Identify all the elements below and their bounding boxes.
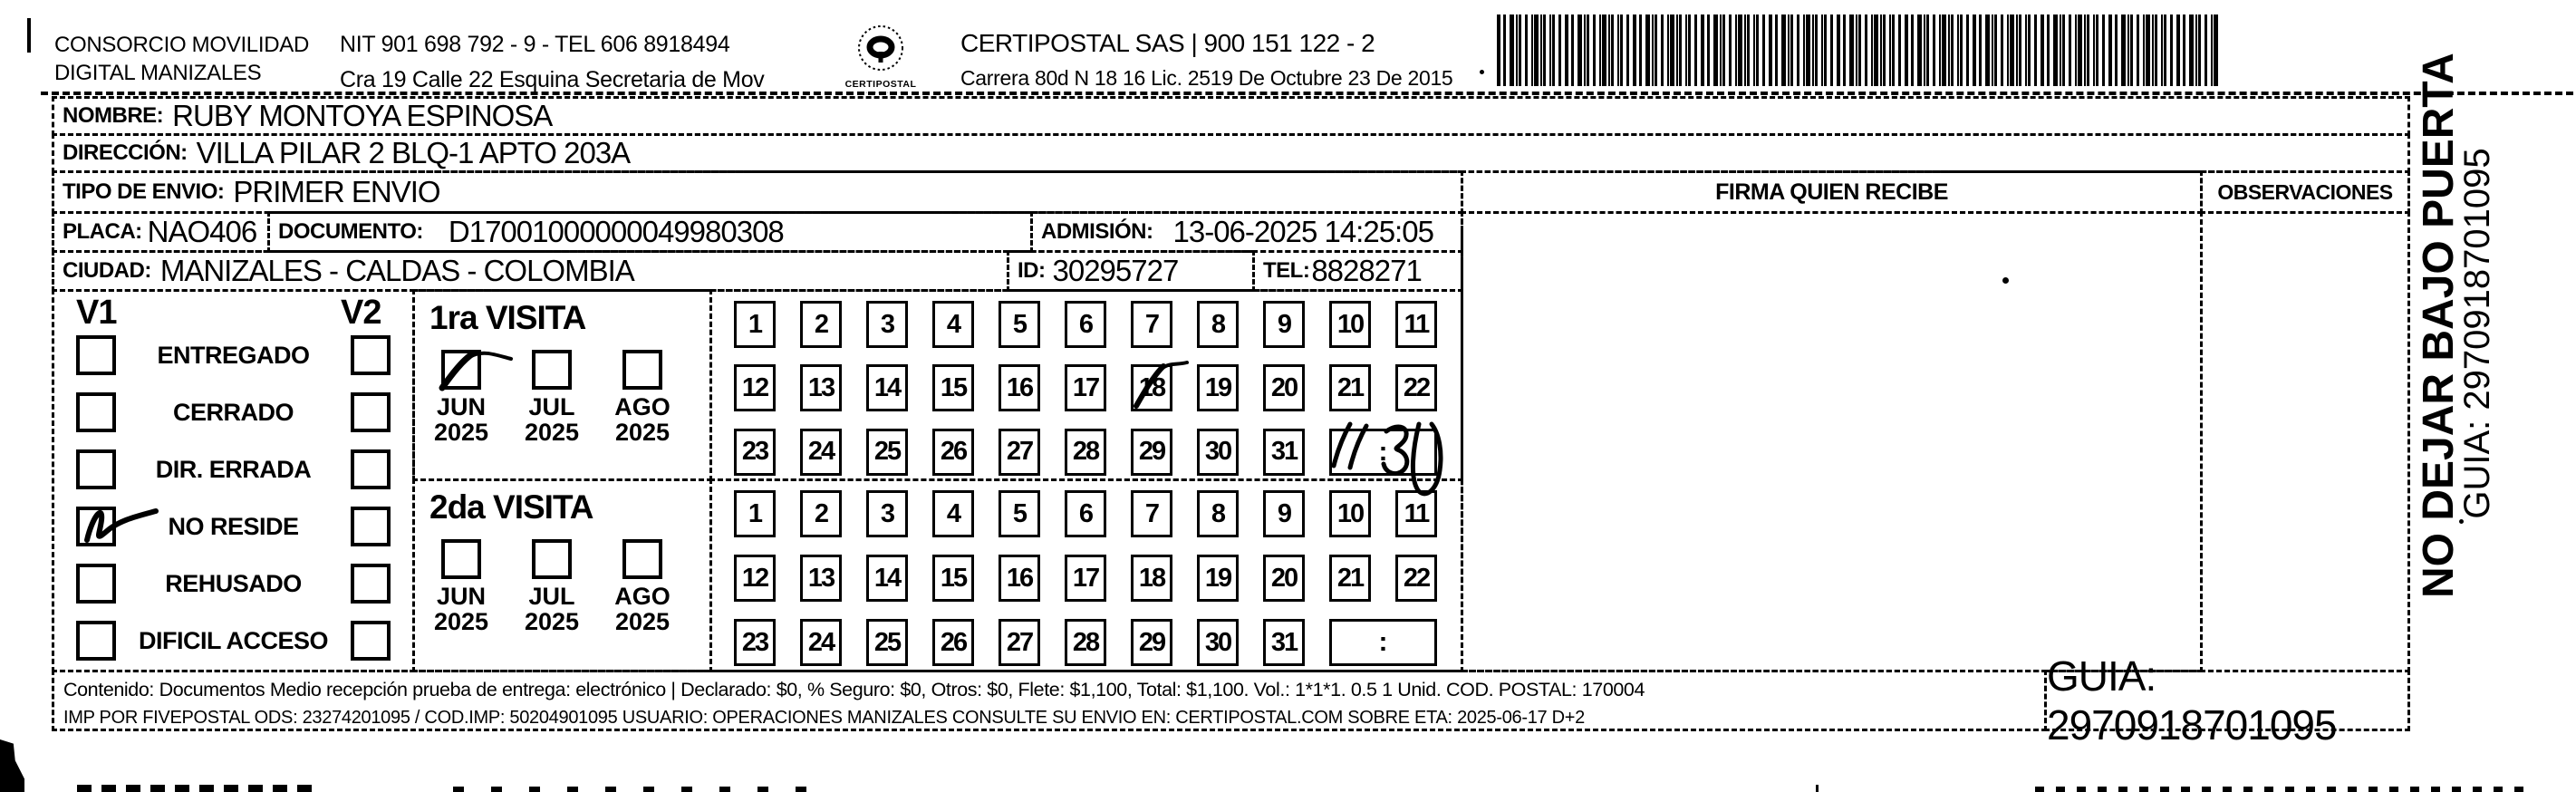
ciudad-cell: CIUDAD: MANIZALES - CALDAS - COLOMBIA: [52, 250, 1009, 292]
barcode-bar: [2211, 14, 2213, 86]
ciudad-label: CIUDAD:: [63, 258, 151, 284]
visit2-day-31: 31: [1263, 619, 1305, 666]
barcode-bar: [1611, 14, 1614, 86]
barcode-bar: [1738, 14, 1742, 86]
barcode-bar: [1824, 14, 1827, 86]
v1-column-header: V1: [76, 294, 116, 333]
barcode-bar: [2025, 14, 2027, 86]
barcode: [1497, 14, 2222, 86]
barcode-bar: [1781, 14, 1786, 86]
status-label-cerrado: CERRADO: [116, 399, 351, 427]
barcode-bar: [1797, 14, 1799, 86]
barcode-bar: [1830, 14, 1833, 86]
visit2-day-8: 8: [1197, 490, 1239, 537]
visit1-day-18: 18: [1131, 364, 1172, 411]
certipostal-logo-icon: [826, 24, 935, 74]
visit2-month-label-ago: AGO: [609, 584, 676, 609]
documento-cell: DOCUMENTO: D17001000000049980308: [267, 211, 1033, 253]
barcode-bar: [1849, 14, 1854, 86]
visit1-month-jun: JUN2025: [428, 350, 495, 447]
barcode-bar: [2007, 14, 2009, 86]
barcode-bar: [1933, 14, 1935, 86]
visit2-month-jun: JUN2025: [428, 539, 495, 636]
barcode-bar: [2176, 14, 2180, 86]
visit1-day-17: 17: [1065, 364, 1106, 411]
barcode-bar: [1722, 14, 1725, 86]
scan-artifact-bottom-dashes-3: [2035, 787, 2529, 792]
visit1-month-label-jul: JUL: [518, 394, 585, 420]
barcode-bar: [1694, 14, 1697, 86]
visit2-month-year-jun: 2025: [428, 609, 495, 636]
visit1-day-20: 20: [1263, 364, 1305, 411]
visit2-day-30: 30: [1197, 619, 1239, 666]
barcode-bar: [1540, 14, 1542, 86]
barcode-bar: [2189, 14, 2194, 86]
v2-checkbox-rehusado: [351, 564, 391, 604]
barcode-bar: [1985, 14, 1990, 86]
visit2-months: JUN2025JUL2025AGO2025: [428, 539, 676, 636]
tel-cell: TEL: 8828271: [1252, 250, 1463, 292]
direccion-value: VILLA PILAR 2 BLQ-1 APTO 203A: [197, 136, 631, 170]
barcode-bar: [1880, 14, 1882, 86]
barcode-bar: [2019, 14, 2021, 86]
placa-cell: PLACA: NAO406: [52, 211, 270, 253]
barcode-bar: [2130, 14, 2133, 86]
visit1-month-label-ago: AGO: [609, 394, 676, 420]
barcode-bar: [1994, 14, 1997, 86]
firma-body: [1461, 211, 2203, 672]
placa-label: PLACA:: [63, 219, 142, 245]
status-label-dificil-acceso: DIFICIL ACCESO: [116, 627, 351, 655]
barcode-bar: [1633, 14, 1636, 86]
v1-checkbox-cerrado: [76, 392, 116, 432]
observaciones-body: [2200, 211, 2410, 672]
barcode-bar: [1525, 14, 1528, 86]
barcode-bar: [2143, 14, 2145, 86]
barcode-bar: [2170, 14, 2173, 86]
barcode-bar: [2108, 14, 2112, 86]
visit2-day-26: 26: [932, 619, 974, 666]
visit1-day-14: 14: [866, 364, 908, 411]
visit2-day-1: 1: [734, 490, 776, 537]
visit2-day-28: 28: [1065, 619, 1106, 666]
visit2-month-jul: JUL2025: [518, 539, 585, 636]
barcode-bar: [2062, 14, 2065, 86]
visit2-day-22: 22: [1395, 555, 1437, 602]
barcode-bar: [1713, 14, 1718, 86]
direccion-label: DIRECCIÓN:: [63, 140, 188, 166]
barcode-bar: [2115, 14, 2118, 86]
v2-checkbox-cerrado: [351, 392, 391, 432]
barcode-bar: [1602, 14, 1606, 86]
tipo-envio-row: TIPO DE ENVIO: PRIMER ENVIO: [52, 170, 1463, 214]
barcode-bar: [1788, 14, 1790, 86]
barcode-bar: [2214, 14, 2218, 86]
barcode-bar: [1516, 14, 1518, 86]
barcode-bar: [1558, 14, 1561, 86]
guia-vertical-text: GUIA: 2970918701095: [2457, 134, 2497, 533]
visit1-day-24: 24: [800, 429, 842, 476]
visit1-day-15: 15: [932, 364, 974, 411]
barcode-bar: [2155, 14, 2157, 86]
barcode-bar: [2183, 14, 2185, 86]
visit2-day-2: 2: [800, 490, 842, 537]
visit1-month-checkbox-jul: [532, 350, 572, 390]
visit1-day-30: 30: [1197, 429, 1239, 476]
visit1-day-grid: 1234567891011121314151617181920212223242…: [709, 289, 1463, 481]
barcode-bar: [2127, 14, 2129, 86]
visit2-day-4: 4: [932, 490, 974, 537]
admision-cell: ADMISIÓN: 13-06-2025 14:25:05: [1030, 211, 1463, 253]
visit2-day-5: 5: [999, 490, 1040, 537]
status-label-rehusado: REHUSADO: [116, 570, 351, 598]
visit1-day-27: 27: [999, 429, 1040, 476]
visit1-months: JUN2025JUL2025AGO2025: [428, 350, 676, 447]
barcode-bar: [1531, 14, 1533, 86]
barcode-bar: [1815, 14, 1818, 86]
visit2-day-3: 3: [866, 490, 908, 537]
barcode-bar: [2010, 14, 2014, 86]
observaciones-header: OBSERVACIONES: [2200, 170, 2410, 214]
barcode-bar: [1960, 14, 1963, 86]
barcode-bar: [1593, 14, 1596, 86]
barcode-bar: [1865, 14, 1867, 86]
visit1-month-jul: JUL2025: [518, 350, 585, 447]
barcode-bar: [2198, 14, 2201, 86]
barcode-bar: [1889, 14, 1891, 86]
visit1-day-7: 7: [1131, 301, 1172, 348]
barcode-bar: [1871, 14, 1873, 86]
barcode-bar: [1565, 14, 1568, 86]
visit1-day-29: 29: [1131, 429, 1172, 476]
v1-checkbox-dir-errada: [76, 449, 116, 489]
v2-checkbox-entregado: [351, 335, 391, 375]
visit1-day-2: 2: [800, 301, 842, 348]
barcode-bar: [1571, 14, 1574, 86]
visit2-day-grid: 1234567891011121314151617181920212223242…: [709, 478, 1463, 672]
barcode-bar: [1790, 14, 1793, 86]
barcode-bar: [1821, 14, 1823, 86]
v2-checkbox-dificil-acceso: [351, 621, 391, 661]
visit2-month-checkbox-ago: [622, 539, 662, 579]
barcode-bar: [1707, 14, 1710, 86]
certipostal-name: CERTIPOSTAL SAS | 900 151 122 - 2: [960, 29, 1452, 58]
admision-value: 13-06-2025 14:25:05: [1173, 215, 1433, 249]
footer-cell: Contenido: Documentos Medio recepción pr…: [52, 670, 2047, 731]
scan-speck-3: [1480, 70, 1484, 74]
scan-speck-2: [2459, 519, 2464, 524]
barcode-bar: [1645, 14, 1650, 86]
v1-checkbox-entregado: [76, 335, 116, 375]
visit1-day-26: 26: [932, 429, 974, 476]
scan-artifact-bottom-dashes-1: [77, 785, 314, 792]
barcode-bar: [1924, 14, 1925, 86]
status-row-no-reside: NO RESIDE: [54, 507, 412, 546]
status-label-dir-errada: DIR. ERRADA: [116, 456, 351, 484]
barcode-bar: [2034, 14, 2037, 86]
status-row-cerrado: CERRADO: [54, 392, 412, 432]
certipostal-logo-caption: CERTIPOSTAL: [826, 79, 935, 90]
barcode-bar: [1843, 14, 1846, 86]
scan-artifact-corner: [0, 739, 24, 792]
visit1-day-9: 9: [1263, 301, 1305, 348]
id-cell: ID: 30295727: [1007, 250, 1255, 292]
visit2-month-year-ago: 2025: [609, 609, 676, 636]
v2-checkbox-no-reside: [351, 507, 391, 546]
barcode-bar: [1584, 14, 1586, 86]
visit2-month-label-jun: JUN: [428, 584, 495, 609]
barcode-bar: [1655, 14, 1657, 86]
sender-company-line1: CONSORCIO MOVILIDAD: [54, 31, 309, 59]
barcode-bar: [1856, 14, 1857, 86]
barcode-bar: [1812, 14, 1814, 86]
barcode-bar: [1942, 14, 1946, 86]
tel-value: 8828271: [1311, 254, 1421, 288]
visit2-month-ago: AGO2025: [609, 539, 676, 636]
barcode-bar: [1620, 14, 1623, 86]
visit1-day-11: 11: [1395, 301, 1437, 348]
barcode-bar: [1679, 14, 1682, 86]
visit1-day-10: 10: [1329, 301, 1371, 348]
sender-nit: NIT 901 698 792 - 9 - TEL 606 8918494: [340, 27, 765, 63]
nombre-value: RUBY MONTOYA ESPINOSA: [172, 99, 552, 133]
visit2-day-24: 24: [800, 619, 842, 666]
tipo-envio-value: PRIMER ENVIO: [233, 175, 439, 209]
certipostal-info: CERTIPOSTAL SAS | 900 151 122 - 2 Carrer…: [960, 29, 1452, 91]
barcode-bar: [1898, 14, 1901, 86]
barcode-bar: [1973, 14, 1976, 86]
visit1-day-21: 21: [1329, 364, 1371, 411]
barcode-bar: [2060, 14, 2061, 86]
visit2-day-29: 29: [1131, 619, 1172, 666]
barcode-bar: [1948, 14, 1950, 86]
barcode-bar: [1979, 14, 1982, 86]
barcode-bar: [1837, 14, 1840, 86]
footer-line2: IMP POR FIVEPOSTAL ODS: 23274201095 / CO…: [63, 708, 2044, 729]
visit2-day-16: 16: [999, 555, 1040, 602]
scan-artifact-bottom-dashes-2: [453, 787, 834, 792]
barcode-bar: [2146, 14, 2150, 86]
visit2-day-10: 10: [1329, 490, 1371, 537]
visit1-time-box: :: [1329, 429, 1437, 476]
visit2-month-year-jul: 2025: [518, 609, 585, 636]
visit2-time-box: :: [1329, 619, 1437, 666]
barcode-bar: [1905, 14, 1908, 86]
barcode-bar: [1756, 14, 1759, 86]
barcode-bar: [1858, 14, 1861, 86]
visit2-month-label-jul: JUL: [518, 584, 585, 609]
visit2-day-17: 17: [1065, 555, 1106, 602]
barcode-bar: [2137, 14, 2139, 86]
documento-value: D17001000000049980308: [449, 215, 784, 249]
visit1-month-panel: 1ra VISITA JUN2025JUL2025AGO2025: [412, 289, 712, 481]
barcode-bar: [1926, 14, 1929, 86]
visit2-title: 2da VISITA: [429, 488, 593, 526]
visit2-day-9: 9: [1263, 490, 1305, 537]
barcode-bar: [1497, 14, 1500, 86]
visit1-day-13: 13: [800, 364, 842, 411]
visit1-month-checkbox-jun: [441, 350, 481, 390]
barcode-bar: [1652, 14, 1654, 86]
barcode-bar: [1775, 14, 1778, 86]
barcode-bar: [1951, 14, 1954, 86]
barcode-bar: [1747, 14, 1750, 86]
barcode-bar: [1911, 14, 1914, 86]
barcode-bar: [2096, 14, 2098, 86]
barcode-bar: [1735, 14, 1737, 86]
barcode-bar: [2093, 14, 2095, 86]
visit2-day-6: 6: [1065, 490, 1106, 537]
barcode-bar: [1762, 14, 1765, 86]
tel-label: TEL:: [1263, 258, 1309, 284]
barcode-bar: [1577, 14, 1582, 86]
visit2-day-13: 13: [800, 555, 842, 602]
visit1-day-1: 1: [734, 301, 776, 348]
status-panel: V1 V2 ENTREGADOCERRADODIR. ERRADANO RESI…: [52, 289, 415, 672]
ciudad-value: MANIZALES - CALDAS - COLOMBIA: [160, 254, 634, 288]
admision-label: ADMISIÓN:: [1041, 219, 1153, 245]
barcode-bar: [2001, 14, 2003, 86]
visit2-day-18: 18: [1131, 555, 1172, 602]
barcode-bar: [1626, 14, 1629, 86]
barcode-bar: [1729, 14, 1732, 86]
visit2-day-25: 25: [866, 619, 908, 666]
visit1-day-12: 12: [734, 364, 776, 411]
certipostal-address: Carrera 80d N 18 16 Lic. 2519 De Octubre…: [960, 66, 1452, 91]
status-row-rehusado: REHUSADO: [54, 564, 412, 604]
v1-checkbox-no-reside: [76, 507, 116, 546]
firma-header: FIRMA QUIEN RECIBE: [1461, 170, 2203, 214]
visit1-month-checkbox-ago: [622, 350, 662, 390]
visit2-day-27: 27: [999, 619, 1040, 666]
visit2-day-23: 23: [734, 619, 776, 666]
barcode-bar: [2195, 14, 2197, 86]
footer-line1: Contenido: Documentos Medio recepción pr…: [63, 679, 2044, 701]
barcode-bar: [1744, 14, 1746, 86]
barcode-bar: [1670, 14, 1674, 86]
visit2-day-7: 7: [1131, 490, 1172, 537]
v2-column-header: V2: [341, 294, 381, 333]
tipo-envio-label: TIPO DE ENVIO:: [63, 179, 224, 205]
visit1-day-4: 4: [932, 301, 974, 348]
visit2-day-12: 12: [734, 555, 776, 602]
v2-checkbox-dir-errada: [351, 449, 391, 489]
visit1-day-28: 28: [1065, 429, 1106, 476]
barcode-bar: [1503, 14, 1506, 86]
sender-contact: NIT 901 698 792 - 9 - TEL 606 8918494 Cr…: [340, 27, 765, 98]
visit1-day-23: 23: [734, 429, 776, 476]
barcode-bar: [1667, 14, 1669, 86]
barcode-bar: [2205, 14, 2207, 86]
barcode-bar: [1519, 14, 1521, 86]
barcode-bar: [1803, 14, 1805, 86]
barcode-bar: [1917, 14, 1922, 86]
nombre-label: NOMBRE:: [63, 103, 163, 129]
top-rule: [41, 92, 2573, 95]
barcode-bar: [1992, 14, 1993, 86]
visit1-month-ago: AGO2025: [609, 350, 676, 447]
status-row-entregado: ENTREGADO: [54, 335, 412, 375]
barcode-bar: [2047, 14, 2050, 86]
status-label-entregado: ENTREGADO: [116, 342, 351, 370]
id-label: ID:: [1018, 258, 1046, 284]
visit1-month-year-jul: 2025: [518, 420, 585, 447]
visit1-month-label-jun: JUN: [428, 394, 495, 420]
visit2-day-19: 19: [1197, 555, 1239, 602]
barcode-bar: [1639, 14, 1642, 86]
visit2-day-14: 14: [866, 555, 908, 602]
barcode-bar: [2016, 14, 2018, 86]
visit2-day-15: 15: [932, 555, 974, 602]
visit2-day-21: 21: [1329, 555, 1371, 602]
barcode-bar: [1892, 14, 1895, 86]
barcode-bar: [1806, 14, 1810, 86]
barcode-bar: [1510, 14, 1514, 86]
visit1-day-22: 22: [1395, 364, 1437, 411]
no-dejar-bajo-puerta-text: NO DEJAR BAJO PUERTA: [2414, 91, 2461, 598]
visit1-day-19: 19: [1197, 364, 1239, 411]
barcode-bar: [1685, 14, 1687, 86]
barcode-bar: [1617, 14, 1619, 86]
sender-company-line2: DIGITAL MANIZALES: [54, 59, 309, 87]
barcode-bar: [1661, 14, 1664, 86]
status-row-dificil-acceso: DIFICIL ACCESO: [54, 621, 412, 661]
barcode-bar: [2152, 14, 2154, 86]
certipostal-logo: CERTIPOSTAL ··············: [826, 24, 935, 96]
barcode-bar: [1688, 14, 1691, 86]
barcode-bar: [1769, 14, 1772, 86]
visit1-day-25: 25: [866, 429, 908, 476]
visit2-month-panel: 2da VISITA JUN2025JUL2025AGO2025: [412, 478, 712, 672]
status-row-dir-errada: DIR. ERRADA: [54, 449, 412, 489]
barcode-bar: [1966, 14, 1969, 86]
barcode-bar: [2087, 14, 2089, 86]
placa-value: NAO406: [148, 215, 257, 249]
barcode-bar: [1534, 14, 1539, 86]
visit1-day-6: 6: [1065, 301, 1106, 348]
barcode-bar: [2028, 14, 2031, 86]
visit1-month-year-jun: 2025: [428, 420, 495, 447]
visit1-day-5: 5: [999, 301, 1040, 348]
v1-checkbox-dificil-acceso: [76, 621, 116, 661]
scan-artifact-tick: [1816, 785, 1819, 792]
barcode-bar: [2161, 14, 2163, 86]
visit1-month-year-ago: 2025: [609, 420, 676, 447]
visit1-day-8: 8: [1197, 301, 1239, 348]
barcode-bar: [1599, 14, 1601, 86]
direccion-row: DIRECCIÓN: VILLA PILAR 2 BLQ-1 APTO 203A: [52, 133, 2410, 173]
id-value: 30295727: [1053, 254, 1179, 288]
barcode-bar: [1701, 14, 1704, 86]
barcode-bar: [2102, 14, 2105, 86]
barcode-bar: [1587, 14, 1589, 86]
visit2-day-11: 11: [1395, 490, 1437, 537]
barcode-bar: [1552, 14, 1555, 86]
barcode-bar: [2121, 14, 2126, 86]
scan-artifact-topleft: [27, 18, 31, 53]
barcode-bar: [2041, 14, 2044, 86]
sender-company: CONSORCIO MOVILIDAD DIGITAL MANIZALES: [54, 31, 309, 87]
barcode-bar: [1939, 14, 1941, 86]
visit2-month-checkbox-jun: [441, 539, 481, 579]
barcode-bar: [2069, 14, 2071, 86]
v1-checkbox-rehusado: [76, 564, 116, 604]
visit1-title: 1ra VISITA: [429, 299, 585, 337]
scan-speck-1: [2002, 277, 2009, 284]
barcode-bar: [2084, 14, 2086, 86]
barcode-bar: [1543, 14, 1546, 86]
barcode-bar: [1676, 14, 1678, 86]
